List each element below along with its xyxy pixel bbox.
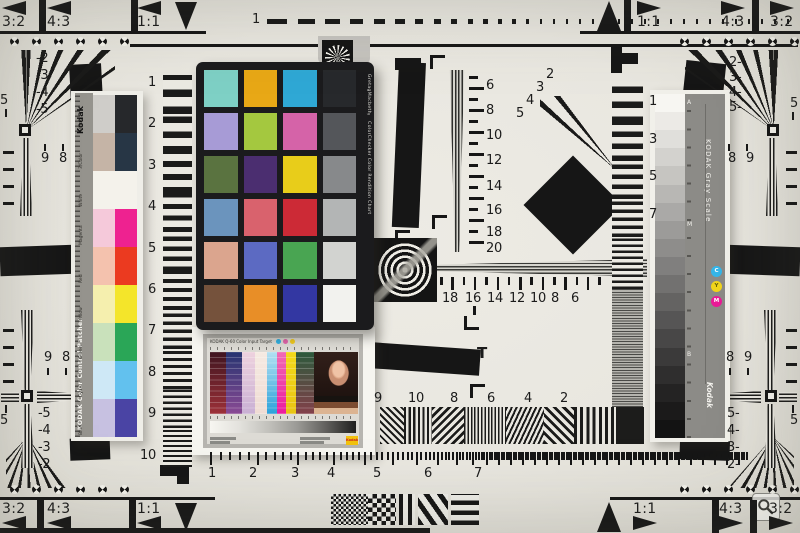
separator-bar <box>37 500 44 533</box>
flag-triangle-icon <box>770 1 794 15</box>
fan-number: 3 <box>536 81 544 94</box>
resolution-stripe-block <box>163 75 192 114</box>
gray-step <box>655 275 685 293</box>
q60-gray-ramp <box>210 421 356 433</box>
ruler-dash <box>434 19 441 24</box>
ruler-tick <box>319 452 321 460</box>
bottom-ruler-number: 4 <box>327 467 335 480</box>
kodak-patch-row: Blue <box>93 399 137 437</box>
kodak-patch-row: Red <box>93 247 137 285</box>
separator-bar <box>624 0 631 33</box>
bottom-ruler-number: 1 <box>208 467 216 480</box>
edge-tick <box>5 405 7 413</box>
ruler-tick <box>402 452 404 460</box>
checker-coarse <box>368 494 396 525</box>
kodak-patch-row: Magenta <box>93 209 137 247</box>
edge-dash <box>786 168 797 171</box>
edge-number: 5 <box>0 414 8 427</box>
fan-number: 3- <box>729 71 741 84</box>
ruler-dash <box>683 19 686 24</box>
fan-number: -2 <box>38 458 50 471</box>
registration-mark <box>746 485 755 494</box>
ruler-tick <box>239 452 241 460</box>
left-wedge-number: 8 <box>136 366 156 379</box>
edge-dash <box>3 363 14 366</box>
wedge-bundle <box>21 310 34 390</box>
kodak-patch-row: Yellow <box>93 285 137 323</box>
resolution-stripe-block <box>612 123 643 161</box>
t-mark <box>621 53 638 64</box>
fan-number: 2- <box>729 56 741 69</box>
ruler-dash <box>631 19 634 24</box>
zone-plate-line <box>373 238 437 302</box>
kodak-patch-tint <box>93 95 115 133</box>
gray-step <box>655 384 685 402</box>
registration-mark <box>724 485 733 494</box>
pair-tick <box>746 144 748 151</box>
ruler-tick <box>312 452 314 460</box>
resolution-stripe-block <box>163 349 192 388</box>
gray-band-ticks <box>687 94 691 438</box>
small-tick <box>473 306 476 315</box>
top-label-underline-right <box>580 31 800 34</box>
pattern-block <box>432 407 464 444</box>
triangle-marker <box>597 1 621 31</box>
ruler-dash <box>774 19 777 24</box>
square-marker <box>765 390 777 402</box>
top-label-underline-left <box>0 31 206 34</box>
fan-number: 4- <box>729 86 741 99</box>
separator-bar <box>129 500 136 533</box>
kodak-patch-label: 3/Color <box>80 135 90 169</box>
registration-mark <box>32 37 41 46</box>
horizontal-scale-number: 8 <box>551 292 559 305</box>
portrait-stripe <box>314 408 358 414</box>
scale-tick <box>469 230 478 233</box>
fan-number: -3 <box>38 441 50 454</box>
gray-step <box>655 239 685 257</box>
flag-triangle-icon <box>721 1 745 15</box>
fan-number: 4 <box>526 94 534 107</box>
scale-tick <box>469 142 478 145</box>
ruler-tick <box>746 452 748 460</box>
edge-dash <box>3 151 14 154</box>
t-letter-mark: T <box>477 346 487 361</box>
test-chart-photo: 1 T 5 5 5 5 <box>0 0 800 533</box>
gray-step <box>655 112 685 130</box>
kodak-patch-solid <box>115 247 137 285</box>
ink-dot: C <box>711 266 722 277</box>
left-wedge-number: 1 <box>136 76 156 89</box>
ruler-dash <box>735 19 738 24</box>
pair-number: 9 <box>41 152 49 165</box>
edge-dash <box>786 380 797 383</box>
edge-dash <box>3 202 14 205</box>
registration-mark <box>790 37 799 46</box>
top-ruler-number: 1 <box>252 13 260 26</box>
ruler-dash <box>350 19 363 24</box>
vertical-scale-number: 14 <box>486 180 502 193</box>
square-marker <box>19 124 31 136</box>
ruler-tick <box>305 452 307 460</box>
scale-tick <box>576 277 579 285</box>
q60-footer-text <box>210 437 236 440</box>
ruler-dash <box>512 19 515 24</box>
scale-tick <box>469 241 484 244</box>
vertical-scale-number: 12 <box>486 154 502 167</box>
fan-number: -2 <box>36 52 48 65</box>
right-wedge-number: 3 <box>649 133 657 146</box>
bottom-ruler-number: 3 <box>291 467 299 480</box>
wedge-bundle <box>764 404 777 468</box>
colorchecker-patch <box>323 199 357 236</box>
ruler-dash <box>298 19 315 24</box>
horizontal-scale-number: 18 <box>442 292 458 305</box>
edge-dash <box>786 363 797 366</box>
scale-tick <box>469 175 484 178</box>
scale-tick <box>485 277 488 285</box>
colorchecker-patch <box>283 199 317 236</box>
bottom-ruler-number: 2 <box>249 467 257 480</box>
separator-bar <box>750 500 757 533</box>
kodak-patch-row: White <box>93 171 137 209</box>
ruler-dash <box>670 19 673 24</box>
kodak-patch-label: Green <box>80 325 90 359</box>
kodak-patch-list: Black3/ColorWhiteMagentaRedYellowGreenCy… <box>93 95 137 437</box>
edge-number: 5 <box>790 414 798 427</box>
edge-tick <box>792 405 794 413</box>
separator-bar <box>39 0 46 33</box>
edge-bar-left <box>0 245 74 277</box>
q60-dot <box>290 339 295 344</box>
gray-step <box>655 203 685 221</box>
ruler-tick <box>257 452 259 465</box>
fan-number: 2 <box>546 68 554 81</box>
ruler-tick <box>397 452 399 460</box>
strip-number: 2 <box>560 392 568 405</box>
left-wedge-number: 3 <box>136 159 156 172</box>
edge-dash <box>3 168 14 171</box>
ruler-tick <box>290 452 292 460</box>
ruler-tick <box>483 452 485 460</box>
top-frame-line <box>368 44 798 47</box>
left-wedge-number: 9 <box>136 407 156 420</box>
scale-tick <box>469 131 484 134</box>
kodak-patch-tint <box>93 285 115 323</box>
kodak-patch-label: White <box>80 173 90 207</box>
kodak-patch-solid <box>115 209 137 247</box>
resolution-stripe-block <box>163 114 192 153</box>
ruler-dash <box>451 19 457 24</box>
q60-tick-row <box>210 416 356 419</box>
edge-tick <box>792 112 794 120</box>
gray-step <box>655 185 685 203</box>
edge-dash <box>786 185 797 188</box>
black-diamond <box>524 156 623 255</box>
right-wedge-number: 5 <box>649 170 657 183</box>
registration-mark <box>98 37 107 46</box>
separator-bar <box>752 0 759 33</box>
left-wedge-number: 5 <box>136 242 156 255</box>
tilted-mid-bar <box>371 342 481 375</box>
colorchecker-card: GretagMacbeth™ ColorChecker Color Rendit… <box>196 62 374 330</box>
corner-bracket <box>430 55 445 69</box>
resolution-stripe-block <box>163 310 192 349</box>
separator-bar <box>131 0 138 33</box>
ruler-tick <box>364 452 366 465</box>
aspect-ratio-label: 4:3 <box>47 502 70 516</box>
edge-dash <box>3 346 14 349</box>
q60-footer-text <box>300 441 324 444</box>
kodak-patch-label: Magenta <box>80 211 90 245</box>
colorchecker-patch <box>244 113 278 150</box>
ruler-tick <box>265 452 267 460</box>
colorchecker-patch <box>244 156 278 193</box>
registration-mark <box>790 485 799 494</box>
colorchecker-patch <box>244 285 278 322</box>
q60-title: KODAK Q-60 Color Input Target <box>210 339 272 344</box>
pattern-block <box>506 407 544 444</box>
kodak-patch-tint <box>93 209 115 247</box>
right-wedge-number: 1 <box>649 95 657 108</box>
registration-mark <box>680 37 689 46</box>
ruler-tick <box>358 452 360 460</box>
pair-number: 9 <box>744 351 752 364</box>
ruler-dash <box>267 19 287 24</box>
scale-tick <box>469 76 478 79</box>
q60-row-lines <box>210 352 314 414</box>
pair-tick <box>44 144 46 151</box>
aspect-ratio-label: 1:1 <box>137 15 160 29</box>
fan-number: -5 <box>38 407 50 420</box>
gray-step <box>655 420 685 438</box>
ruler-dash <box>709 19 712 24</box>
bottom-ruler-number: 7 <box>474 467 482 480</box>
horizontal-scale-number: 16 <box>465 292 481 305</box>
wedge-bundle <box>21 404 34 468</box>
horizontal-bars-block <box>451 494 479 525</box>
colorchecker-patch <box>283 285 317 322</box>
ruler-dash <box>657 19 660 24</box>
resolution-stripe-block <box>612 161 643 199</box>
scale-tick <box>474 277 477 290</box>
gray-step <box>655 348 685 366</box>
gray-step <box>655 166 685 184</box>
fan-number: -4 <box>38 424 50 437</box>
edge-dash <box>3 380 14 383</box>
vertical-scale-number: 20 <box>486 242 502 255</box>
scale-tick <box>463 277 466 285</box>
gray-scale-brand: Kodak <box>698 382 714 428</box>
scale-tick <box>469 197 484 200</box>
bottom-ruler-number: 6 <box>424 467 432 480</box>
ink-dot: Y <box>711 281 722 292</box>
ruler-dash <box>722 19 725 24</box>
ruler-dash <box>374 19 385 24</box>
fan-number: -4 <box>36 86 48 99</box>
pair-tick <box>728 144 730 151</box>
vertical-scale-number: 10 <box>486 129 502 142</box>
flag-triangle-icon <box>719 516 743 530</box>
strip-number: 8 <box>450 392 458 405</box>
kodak-patch-solid <box>115 285 137 323</box>
pair-number: 8 <box>59 152 67 165</box>
gray-step <box>655 402 685 420</box>
gray-step <box>655 221 685 239</box>
colorchecker-patch <box>204 156 238 193</box>
registration-mark <box>724 37 733 46</box>
ruler-tick <box>333 452 335 465</box>
ruler-dash <box>325 19 340 24</box>
kodak-patch-solid <box>115 361 137 399</box>
registration-mark <box>120 485 129 494</box>
gray-scale-mark: A <box>687 100 691 106</box>
gray-step <box>655 366 685 384</box>
registration-mark <box>680 485 689 494</box>
top-frame-line <box>130 44 318 47</box>
aspect-ratio-label: 4:3 <box>719 502 742 516</box>
bottom-ruler-number: 5 <box>373 467 381 480</box>
ruler-dash <box>696 19 699 24</box>
pattern-block <box>616 407 644 444</box>
aspect-ratio-label: 1:1 <box>137 502 160 516</box>
vertical-scale-number: 16 <box>486 204 502 217</box>
registration-mark <box>76 485 85 494</box>
colorchecker-patch <box>283 70 317 107</box>
scale-tick <box>519 277 522 290</box>
colorchecker-patch <box>204 199 238 236</box>
strip-number: 6 <box>487 392 495 405</box>
ink-dot: M <box>711 296 722 307</box>
scale-tick <box>530 277 533 285</box>
flag-triangle-icon <box>633 516 657 530</box>
resolution-stripe-block <box>163 271 192 310</box>
q60-kodak-logo: Kodak <box>346 436 358 445</box>
registration-mark <box>702 37 711 46</box>
kodak-patch-tint <box>93 323 115 361</box>
resolution-stripe-block <box>612 85 643 123</box>
gray-step <box>655 329 685 347</box>
edge-dash <box>786 346 797 349</box>
ruler-tick <box>469 452 471 460</box>
registration-mark <box>98 485 107 494</box>
colorchecker-patch <box>323 156 357 193</box>
ruler-tick <box>407 452 409 460</box>
edge-dash <box>3 329 14 332</box>
horizontal-scale-number: 6 <box>571 292 579 305</box>
colorchecker-patch <box>323 113 357 150</box>
ruler-dash <box>579 19 582 24</box>
ruler-tick <box>475 452 477 460</box>
ruler-tick <box>220 452 222 460</box>
ruler-dash <box>787 19 790 24</box>
kodak-patch-label: Black <box>80 97 90 131</box>
corner-bracket <box>432 215 447 229</box>
ruler-tick <box>437 452 439 465</box>
ruler-dash <box>498 19 502 24</box>
kodak-patch-row: 3/Color <box>93 133 137 171</box>
square-marker <box>21 390 33 402</box>
gray-step <box>655 148 685 166</box>
ruler-tick <box>376 452 378 460</box>
gray-step <box>655 130 685 148</box>
kodak-patch-solid <box>115 95 137 133</box>
ruler-tick <box>420 452 422 460</box>
ruler-tick <box>340 452 342 460</box>
ruler-tick <box>297 452 299 465</box>
gray-scale-band: KODAK Gray Scale Kodak AMBCYM <box>685 94 725 438</box>
resolution-stripe-block <box>163 193 192 232</box>
scale-tick <box>469 186 478 189</box>
kodak-patch-tint <box>93 361 115 399</box>
ruler-tick <box>210 452 212 465</box>
colorchecker-patch <box>323 242 357 279</box>
vertical-scale-number: 8 <box>486 104 494 117</box>
strip-number: 9 <box>374 392 382 405</box>
colorchecker-patch <box>283 242 317 279</box>
flag-triangle-icon <box>2 1 26 15</box>
ruler-tick <box>472 452 474 465</box>
colorchecker-grid <box>204 70 356 322</box>
edge-number: 5 <box>0 94 8 107</box>
pair-tick <box>729 368 731 375</box>
fan-number: 5- <box>727 407 739 420</box>
ruler-dash <box>526 19 529 24</box>
kodak-patch-tint <box>93 247 115 285</box>
kodak-patch-row: Cyan <box>93 361 137 399</box>
scale-tick <box>564 277 567 290</box>
scale-tick <box>469 219 484 222</box>
registration-mark <box>54 37 63 46</box>
ruler-tick <box>445 452 447 460</box>
ruler-tick <box>282 452 284 460</box>
colorchecker-patch <box>204 70 238 107</box>
ruler-tick <box>462 452 464 460</box>
scale-tick <box>587 277 590 290</box>
pair-number: 8 <box>728 152 736 165</box>
ruler-dash <box>761 19 764 24</box>
q60-footer-text <box>210 441 230 444</box>
kodak-patch-solid <box>115 399 137 437</box>
registration-mark <box>10 485 19 494</box>
flag-triangle-icon <box>769 516 793 530</box>
registration-mark <box>54 485 63 494</box>
kodak-patch-solid <box>115 323 137 361</box>
edge-dash <box>786 151 797 154</box>
pair-tick <box>747 368 749 375</box>
wedge-bundle <box>766 138 778 216</box>
corner-bracket <box>464 316 479 330</box>
pattern-block <box>464 407 506 444</box>
edge-dash <box>786 329 797 332</box>
ruler-tick <box>392 452 394 465</box>
strip-number: 10 <box>408 392 424 405</box>
kodak-patch-label: Red <box>80 249 90 283</box>
gray-scale-mark: M <box>687 222 692 228</box>
kodak-patch-row: Black <box>93 95 137 133</box>
registration-mark <box>768 37 777 46</box>
scale-tick <box>497 277 500 290</box>
ruler-dash <box>605 19 608 24</box>
ruler-tick <box>429 452 431 460</box>
horizontal-scale-number: 14 <box>487 292 503 305</box>
edge-number: 5 <box>790 97 798 110</box>
registration-mark <box>768 485 777 494</box>
aspect-ratio-label: 4:3 <box>721 15 744 29</box>
edge-bar-right <box>726 245 800 277</box>
resolution-stripe-block <box>163 153 192 192</box>
kodak-patch-solid <box>115 133 137 171</box>
